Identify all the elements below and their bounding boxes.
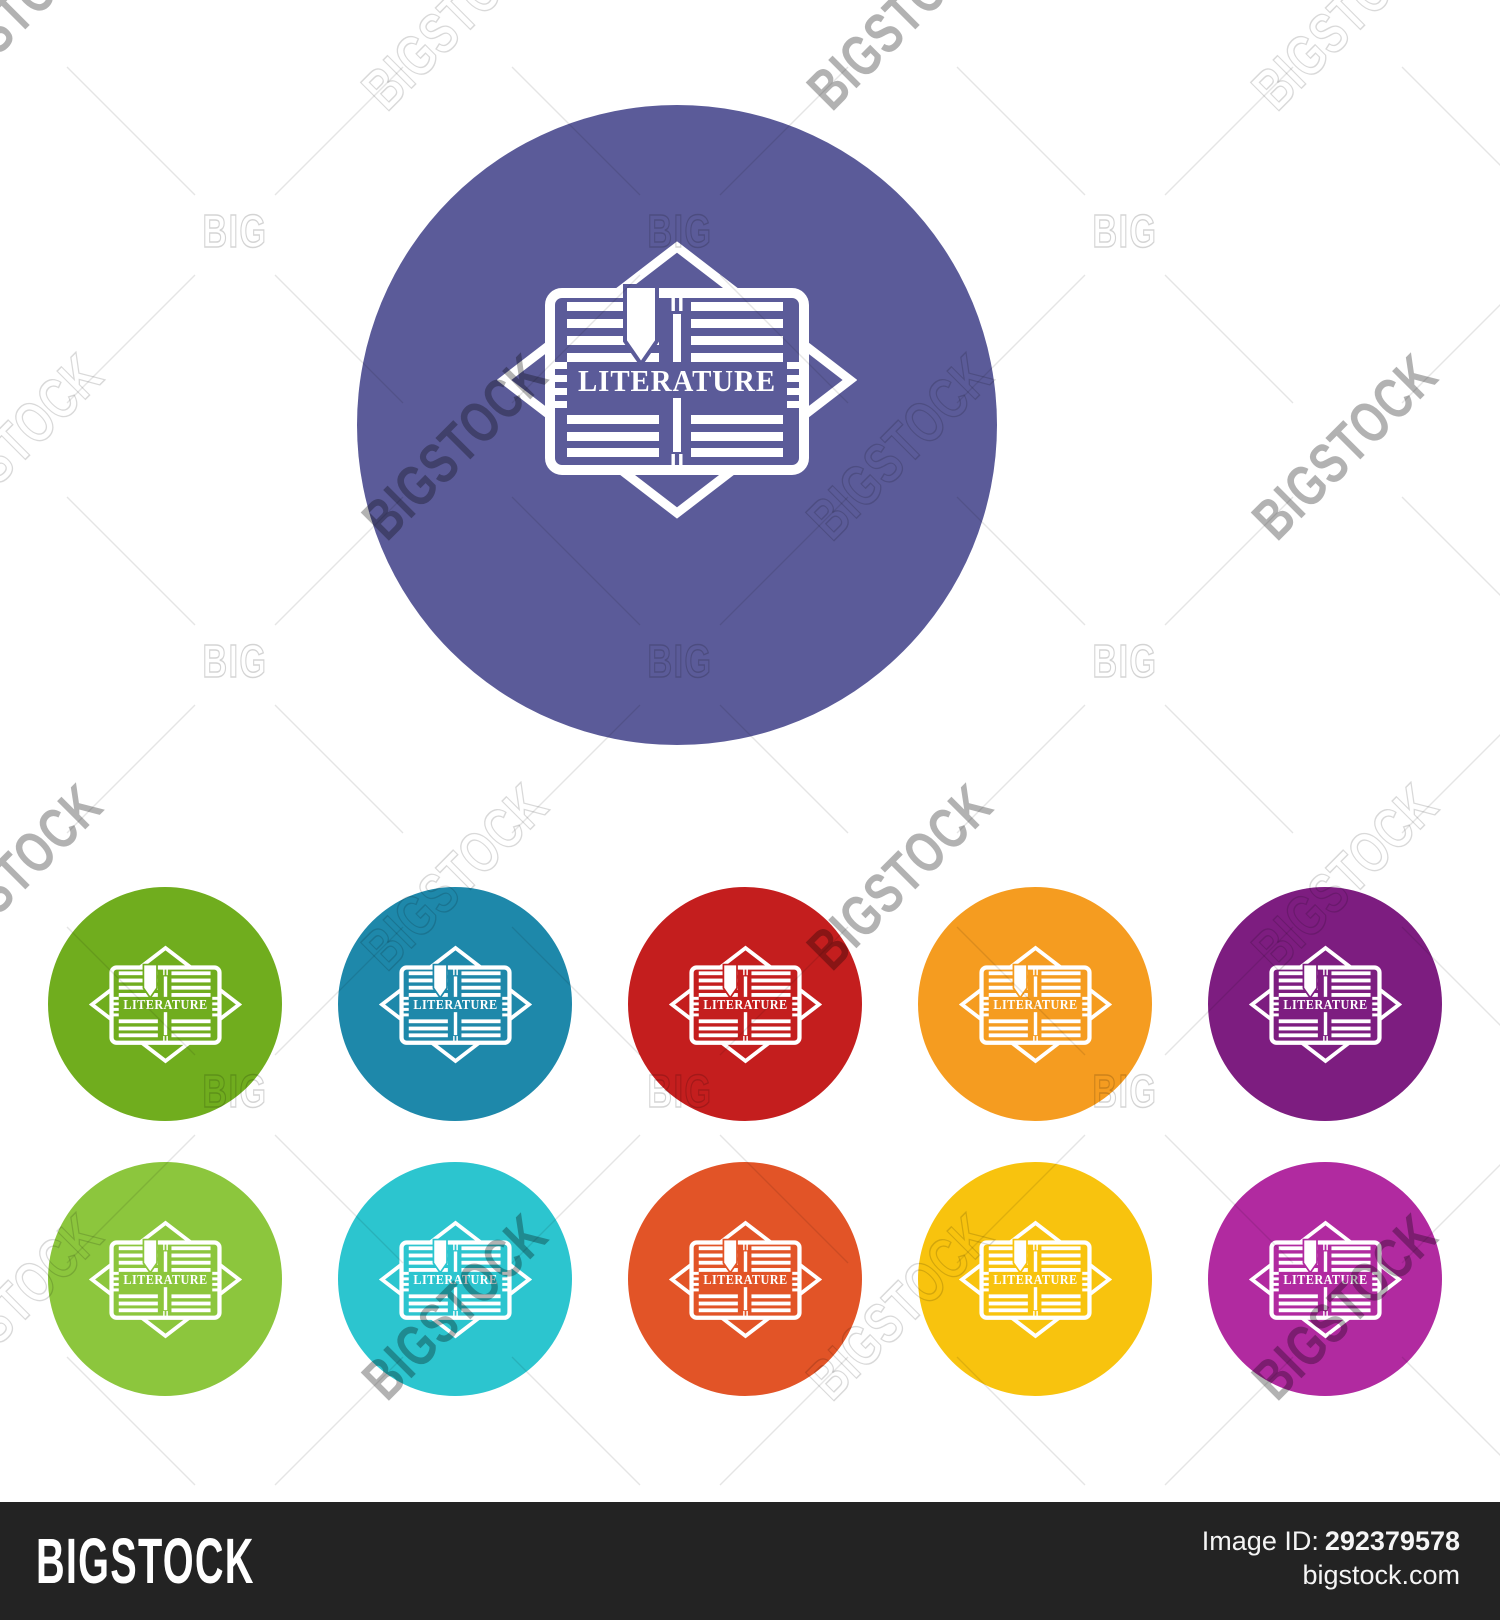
literature-icon: LITERATURE <box>1249 1220 1402 1339</box>
literature-label: LITERATURE <box>578 363 776 398</box>
image-id-line: Image ID:292379578 <box>1202 1524 1460 1558</box>
literature-icon: LITERATURE <box>1249 945 1402 1064</box>
literature-icon: LITERATURE <box>959 945 1112 1064</box>
image-meta: Image ID:292379578 bigstock.com <box>1202 1524 1460 1592</box>
icon-circle-cyan: LITERATURE <box>338 1162 572 1396</box>
literature-label: LITERATURE <box>123 997 207 1012</box>
stock-image-preview: LITERATURE <box>0 0 1500 1620</box>
literature-label: LITERATURE <box>123 1272 207 1287</box>
icon-circle-magenta: LITERATURE <box>1208 1162 1442 1396</box>
literature-icon: LITERATURE <box>959 1220 1112 1339</box>
literature-label: LITERATURE <box>1283 997 1367 1012</box>
literature-label: LITERATURE <box>413 1272 497 1287</box>
literature-label: LITERATURE <box>993 1272 1077 1287</box>
literature-icon: LITERATURE <box>89 945 242 1064</box>
icon-circle-green: LITERATURE <box>48 887 282 1121</box>
literature-icon: LITERATURE <box>379 1220 532 1339</box>
literature-label: LITERATURE <box>413 997 497 1012</box>
bigstock-footer-bar: BIGSTOCK Image ID:292379578 bigstock.com <box>0 1502 1500 1620</box>
literature-label: LITERATURE <box>703 997 787 1012</box>
literature-icon: LITERATURE <box>379 945 532 1064</box>
image-id-value: 292379578 <box>1325 1526 1460 1556</box>
bigstock-logo: BIGSTOCK <box>36 1524 255 1598</box>
literature-icon: LITERATURE <box>497 240 857 520</box>
icon-circle-red: LITERATURE <box>628 887 862 1121</box>
literature-label: LITERATURE <box>1283 1272 1367 1287</box>
literature-icon: LITERATURE <box>669 1220 822 1339</box>
icon-circle-orange: LITERATURE <box>918 887 1152 1121</box>
literature-label: LITERATURE <box>703 1272 787 1287</box>
icon-circle-dark-purple: LITERATURE <box>1208 887 1442 1121</box>
site-url: bigstock.com <box>1202 1558 1460 1592</box>
literature-label: LITERATURE <box>993 997 1077 1012</box>
literature-icon: LITERATURE <box>669 945 822 1064</box>
icon-circle-yellow: LITERATURE <box>918 1162 1152 1396</box>
icon-circle-orange-red: LITERATURE <box>628 1162 862 1396</box>
icon-circle-light-green: LITERATURE <box>48 1162 282 1396</box>
icon-circle-main-slate-purple: LITERATURE <box>357 105 997 745</box>
image-id-label: Image ID: <box>1202 1526 1319 1556</box>
literature-icon: LITERATURE <box>89 1220 242 1339</box>
icon-circle-blue: LITERATURE <box>338 887 572 1121</box>
